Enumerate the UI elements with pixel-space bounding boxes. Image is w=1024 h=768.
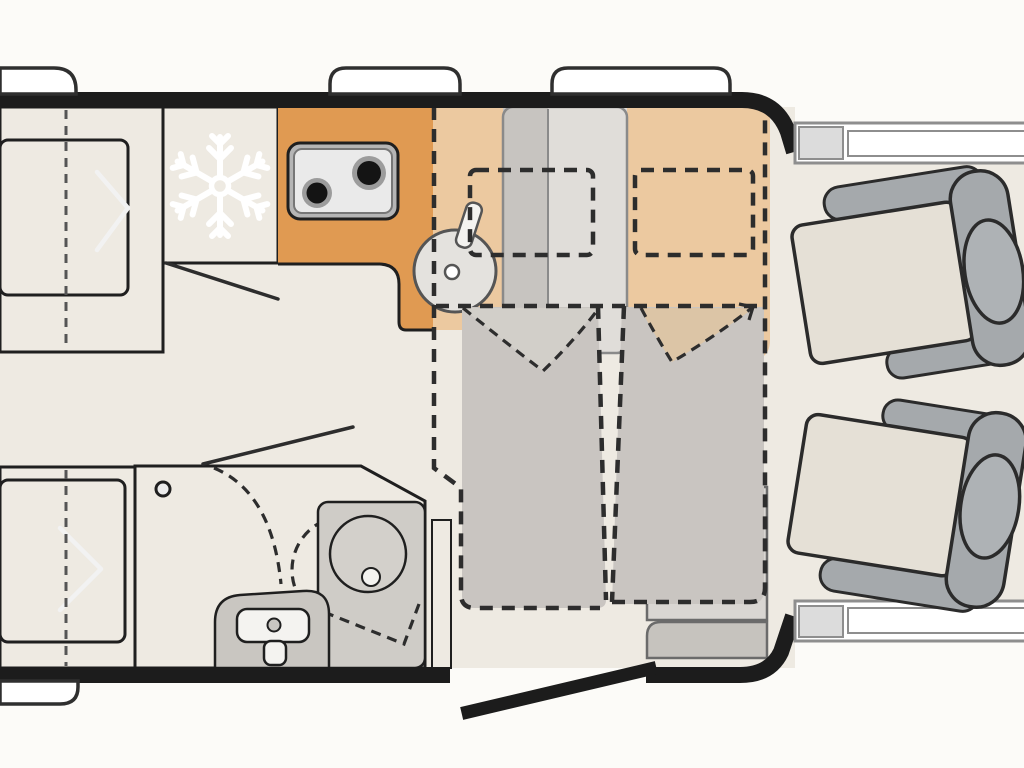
cab-door-bottom [795,601,1024,641]
door-window [848,131,1024,156]
bench-base [647,622,767,658]
mirror-block [799,127,843,159]
door-hinge-icon [156,482,170,496]
roof-window-front [552,68,730,94]
roof-window-rear [0,68,76,94]
mirror-block [799,606,843,637]
roof-window-mid [330,68,460,94]
stove [288,143,398,219]
floorplan-canvas [0,0,1024,768]
cab-door-top [795,123,1024,163]
sink-drain-icon [445,265,459,279]
window-bottom-rear [0,681,78,704]
basin-drain-icon [362,568,380,586]
seat-cushion [790,201,978,366]
door-window [848,608,1024,633]
seat-cushion [786,413,974,578]
toilet-icon [215,591,329,668]
